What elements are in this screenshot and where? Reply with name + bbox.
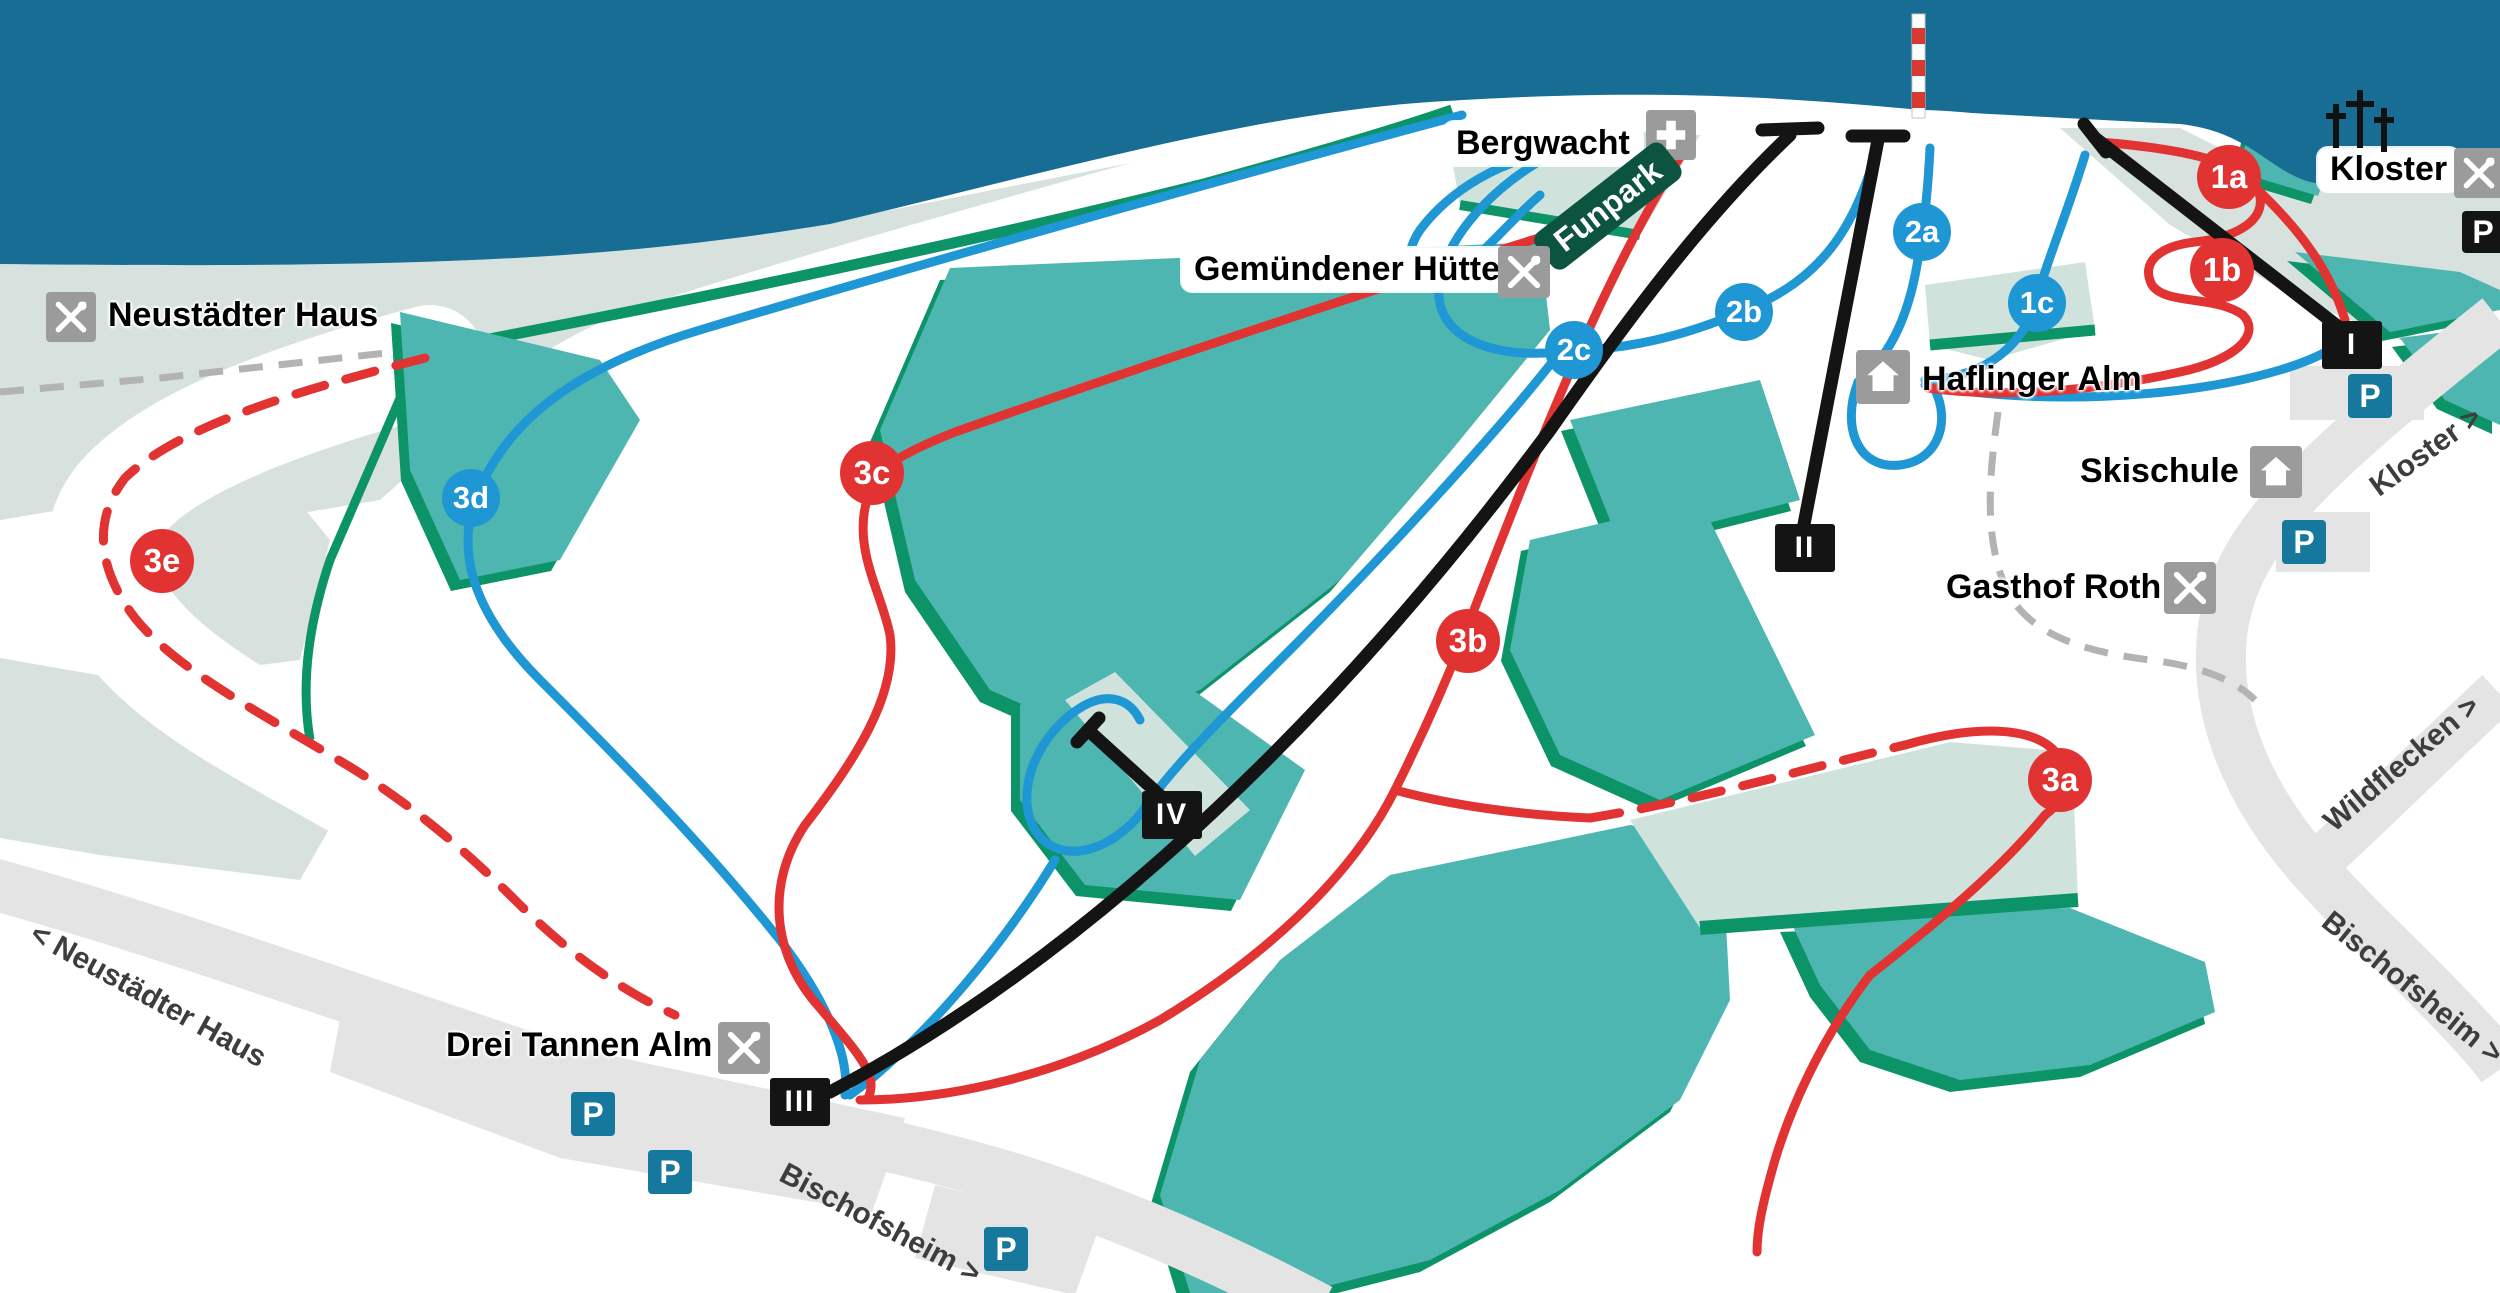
- piste-badge-2a: 2a: [1893, 203, 1951, 261]
- piste-badge-2b: 2b: [1715, 283, 1773, 341]
- summit-crosses-icon: [2322, 86, 2398, 161]
- lift-station-2: II: [1775, 524, 1835, 572]
- parking-icon-kloster: P: [2462, 211, 2500, 253]
- restaurant-icon: [718, 1022, 770, 1074]
- label-bergwacht: Bergwacht: [1444, 122, 1642, 165]
- terrain-graphic: [0, 0, 2500, 1293]
- label-skischule: Skischule: [2080, 452, 2239, 491]
- piste-badge-1c: 1c: [2008, 274, 2066, 332]
- piste-badge-3b: 3b: [1436, 609, 1500, 673]
- piste-badge-3a: 3a: [2028, 748, 2092, 812]
- piste-badge-2c: 2c: [1545, 321, 1603, 379]
- hut-icon: [1856, 350, 1910, 404]
- label-gasthof-roth: Gasthof Roth: [1946, 568, 2161, 607]
- label-gemuendener-huette: Gemündener Hütte: [1182, 248, 1512, 291]
- label-haflinger-alm: Haflinger Alm: [1922, 360, 2142, 399]
- restaurant-icon: [46, 292, 96, 342]
- parking-icon: P: [2348, 374, 2392, 418]
- ski-trail-map: 1a 1b 1c 2a 2b 2c 3a 3b 3c 3d 3e I II II…: [0, 0, 2500, 1293]
- piste-badge-1b: 1b: [2190, 238, 2254, 302]
- piste-badge-3e: 3e: [130, 529, 194, 593]
- parking-icon: P: [648, 1150, 692, 1194]
- piste-badge-1a: 1a: [2197, 145, 2261, 209]
- restaurant-icon: [2454, 148, 2500, 198]
- restaurant-icon: [1498, 246, 1550, 298]
- hut-icon: [2250, 446, 2302, 498]
- parking-icon: P: [571, 1092, 615, 1136]
- lift-station-4: IV: [1142, 791, 1202, 839]
- piste-badge-3d: 3d: [442, 469, 500, 527]
- label-drei-tannen-alm: Drei Tannen Alm: [446, 1026, 712, 1065]
- label-neustaedter-haus: Neustädter Haus: [108, 296, 378, 335]
- lift-station-3: III: [770, 1078, 830, 1126]
- parking-icon: P: [984, 1227, 1028, 1271]
- restaurant-icon: [2164, 562, 2216, 614]
- piste-badge-3c: 3c: [840, 441, 904, 505]
- summit-mast-icon: [1912, 14, 1925, 118]
- parking-icon: P: [2282, 520, 2326, 564]
- lift-station-1: I: [2322, 321, 2382, 369]
